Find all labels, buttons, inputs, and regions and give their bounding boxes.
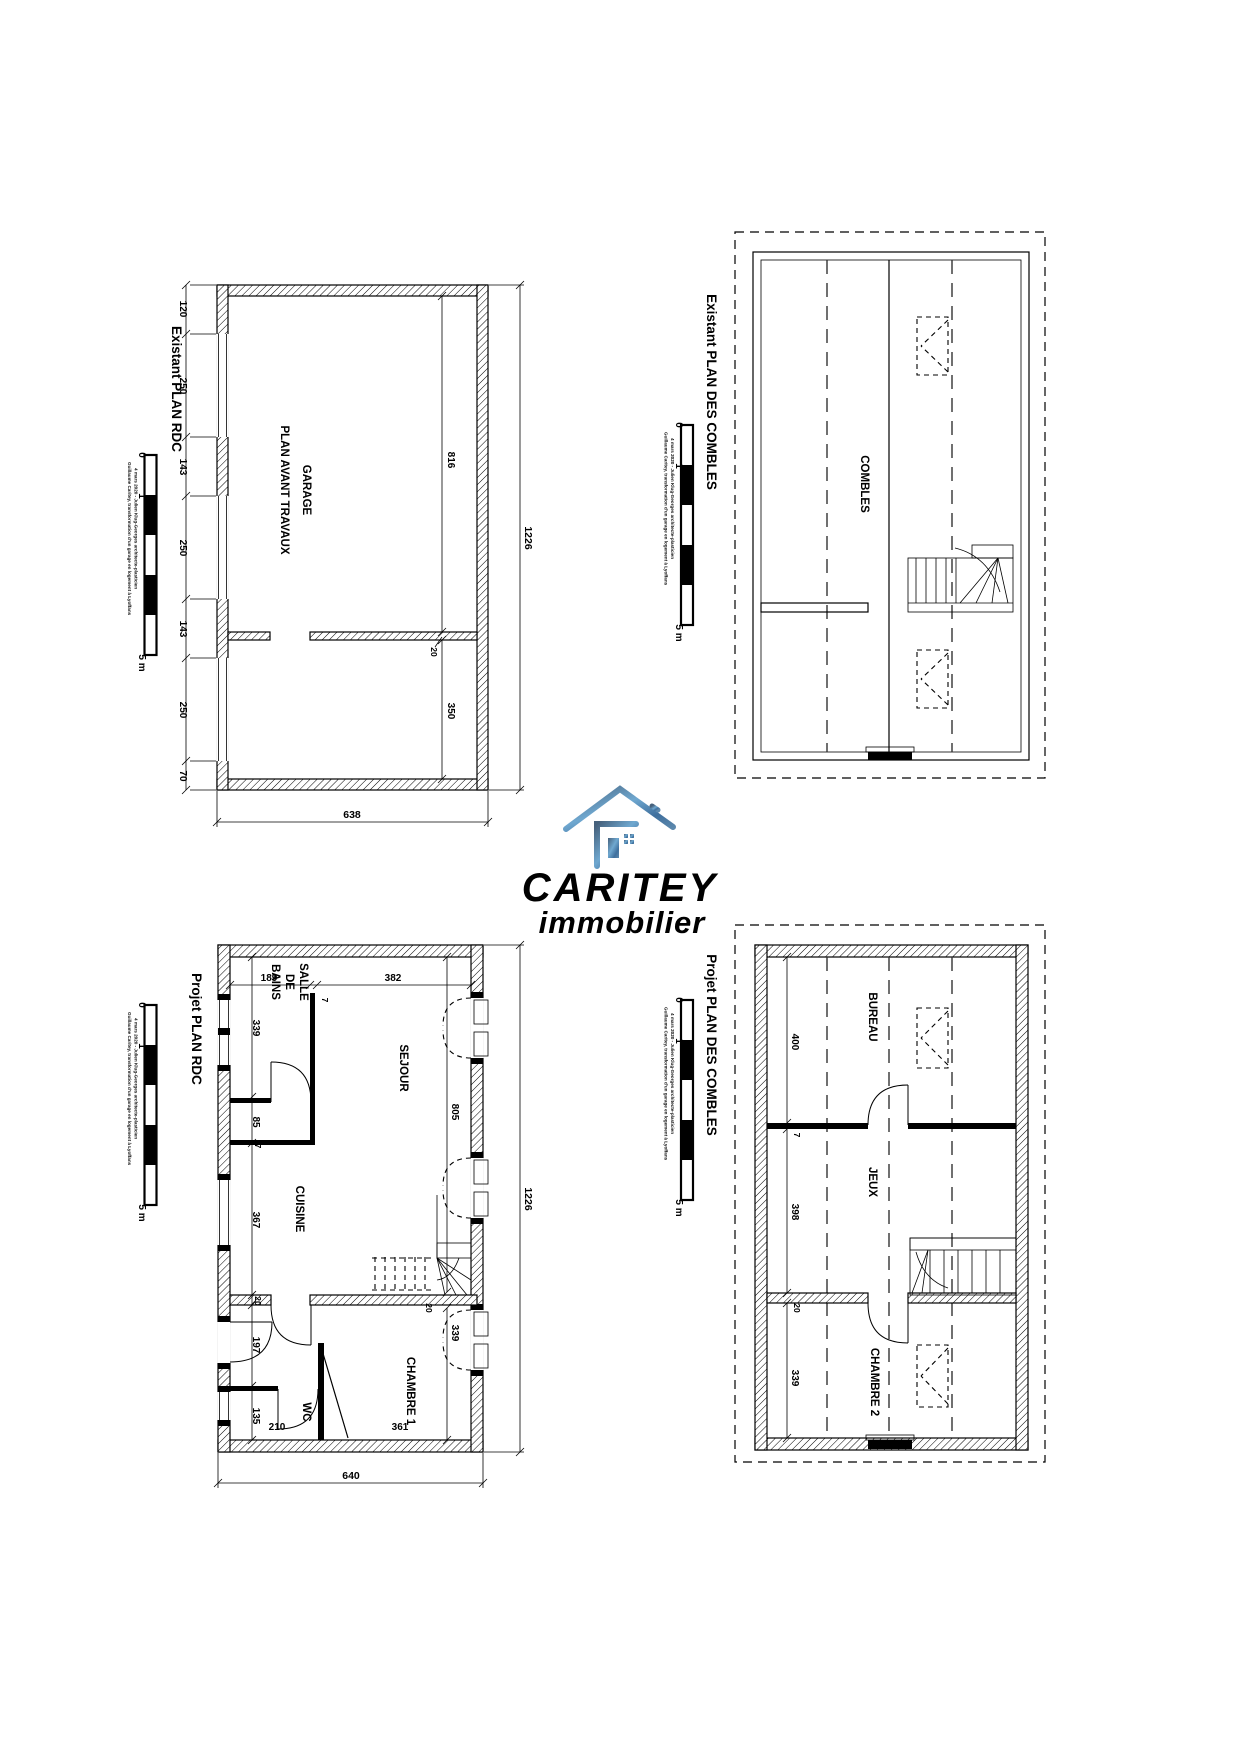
floor-plan-sheet: Existant PLAN RDC GARAGE PLAN AVANT TRAV… <box>0 0 1240 1754</box>
credit-line-1: Guillaume Caritey, transformation d'un g… <box>127 462 132 616</box>
plan-title: Existant PLAN DES COMBLES <box>704 294 719 490</box>
house-window <box>624 834 634 844</box>
scale-bar: 0 1 5 m Guillaume Caritey, transformatio… <box>127 1002 157 1222</box>
room-label-cuisine: CUISINE <box>293 1186 305 1233</box>
roof-window <box>917 1008 948 1068</box>
scale-five: 5 m <box>673 624 684 641</box>
garage-door-openings <box>216 334 229 761</box>
dimension-width: 638 <box>213 791 492 827</box>
dim-189: 189 <box>261 973 278 984</box>
left-wall-windows <box>217 994 231 1426</box>
dimension-length: 1226 <box>489 281 534 794</box>
room-label-bureau: BUREAU <box>866 992 878 1041</box>
staircase <box>372 1243 471 1295</box>
dim-1226: 1226 <box>522 1187 534 1211</box>
room-label-combles: COMBLES <box>858 455 870 513</box>
dim-805: 805 <box>449 1104 460 1121</box>
dim-250b: 250 <box>177 540 188 557</box>
roof-window <box>917 1345 948 1407</box>
dim-143b: 143 <box>177 621 188 638</box>
scale-zero: 0 <box>673 997 684 1003</box>
plan-title: Projet PLAN RDC <box>189 973 204 1085</box>
dim-20: 20 <box>792 1303 802 1313</box>
dim-350: 350 <box>445 703 456 720</box>
credit-line-2: 4 mars 2020 - Julien Klug-Georges archit… <box>670 1013 675 1134</box>
logo: CARITEY immobilier <box>522 789 719 940</box>
room-label-sejour: SEJOUR <box>397 1044 409 1092</box>
room-label-sdb1: SALLE <box>297 963 309 1001</box>
credit-line-2: 4 mars 2020 - Julien Klug-Georges archit… <box>134 468 139 589</box>
dim-70: 70 <box>177 770 188 782</box>
dim-816: 816 <box>445 452 456 469</box>
dim-7b: 7 <box>253 1144 263 1149</box>
dimension-top: 189 382 7 <box>226 973 475 1003</box>
room-label-sdb2: DE <box>283 974 295 990</box>
dim-638: 638 <box>343 809 361 821</box>
scale-bar: 0 1 5 m Guillaume Caritey, transformatio… <box>127 452 157 672</box>
house-door <box>608 838 619 858</box>
dim-640: 640 <box>342 1470 360 1482</box>
dim-20b: 20 <box>424 1303 434 1313</box>
roof-overhang-outline <box>735 232 1045 778</box>
plan-existant-rdc: Existant PLAN RDC GARAGE PLAN AVANT TRAV… <box>127 281 534 827</box>
right-wall-french-doors <box>443 992 488 1376</box>
dim-367: 367 <box>250 1212 261 1229</box>
scale-zero: 0 <box>136 452 147 458</box>
credit-line-2: 4 mars 2020 - Julien Klug-Georges archit… <box>134 1018 139 1139</box>
credit-line-2: 4 mars 2020 - Julien Klug-Georges archit… <box>670 438 675 559</box>
knee-wall <box>761 603 868 612</box>
dim-400: 400 <box>789 1034 800 1051</box>
dim-339: 339 <box>250 1020 261 1037</box>
roof-window <box>917 317 948 375</box>
dim-250a: 250 <box>177 378 188 395</box>
dim-143a: 143 <box>177 459 188 476</box>
plan-projet-combles: Projet PLAN DES COMBLES <box>664 925 1046 1462</box>
dim-135: 135 <box>250 1408 261 1425</box>
dimension-width: 640 <box>214 1453 487 1488</box>
dim-20: 20 <box>429 647 439 657</box>
scale-zero: 0 <box>136 1002 147 1008</box>
dim-1226: 1226 <box>522 526 534 550</box>
plan-title: Projet PLAN DES COMBLES <box>704 954 719 1136</box>
dimension-chain: 400 7 398 20 339 <box>783 953 802 1442</box>
plan-projet-rdc: Projet PLAN RDC <box>127 941 534 1488</box>
room-label-chambre1: CHAMBRE 1 <box>404 1357 416 1426</box>
credit-line-1: Guillaume Caritey, transformation d'un g… <box>127 1012 132 1166</box>
scale-bar: 0 1 5 m Guillaume Caritey, transformatio… <box>664 997 694 1217</box>
dim-7-wall: 7 <box>320 998 330 1003</box>
room-label-jeux: JEUX <box>866 1167 878 1197</box>
credit-line-1: Guillaume Caritey, transformation d'un g… <box>664 1007 669 1161</box>
dim-7: 7 <box>792 1133 802 1138</box>
dim-7c: 7 <box>253 1387 263 1392</box>
dim-7a: 7 <box>253 1098 263 1103</box>
brand-name: CARITEY <box>522 866 719 910</box>
roof-overhang-outline <box>735 925 1045 1462</box>
dimension-chain-left: 339 7 85 7 367 20 197 7 135 <box>248 953 263 1444</box>
room-label-chambre2: CHAMBRE 2 <box>868 1348 880 1416</box>
dim-120: 120 <box>177 301 188 318</box>
room-label-wc: WC <box>300 1402 312 1421</box>
dim-382: 382 <box>385 973 402 984</box>
interior-doors <box>868 1085 908 1343</box>
dim-250c: 250 <box>177 702 188 719</box>
dim-361: 361 <box>392 1422 409 1433</box>
plan-existant-combles: Existant PLAN DES COMBLES COMBLES <box>664 232 1046 778</box>
dimension-length: 1226 <box>484 941 534 1456</box>
interior-partitions <box>230 993 477 1440</box>
attic-door <box>866 747 914 760</box>
scale-five: 5 m <box>136 654 147 671</box>
dim-339b: 339 <box>449 1325 460 1342</box>
staircase <box>908 545 1013 612</box>
scale-five: 5 m <box>136 1204 147 1221</box>
dim-398: 398 <box>789 1204 800 1221</box>
scale-five: 5 m <box>673 1199 684 1216</box>
dim-197: 197 <box>250 1337 261 1354</box>
dim-210: 210 <box>269 1422 286 1433</box>
scale-zero: 0 <box>673 422 684 428</box>
dimension-interior: 816 20 350 <box>429 292 456 783</box>
credit-line-1: Guillaume Caritey, transformation d'un g… <box>664 432 669 586</box>
attic-door <box>866 1435 914 1449</box>
scale-bar: 0 1 5 m Guillaume Caritey, transformatio… <box>664 422 694 642</box>
drawing-canvas: Existant PLAN RDC GARAGE PLAN AVANT TRAV… <box>0 0 1240 1754</box>
interior-partitions <box>767 1123 1016 1303</box>
dim-85: 85 <box>250 1116 261 1128</box>
brand-tagline: immobilier <box>539 905 707 940</box>
house-icon <box>566 789 673 868</box>
room-label-garage: GARAGE <box>300 465 312 516</box>
interior-partition <box>228 296 477 779</box>
dim-20a: 20 <box>253 1296 263 1306</box>
roof-window <box>917 650 948 708</box>
staircase <box>910 1238 1016 1295</box>
room-label-garage-sub: PLAN AVANT TRAVAUX <box>278 425 290 554</box>
dim-339: 339 <box>789 1370 800 1387</box>
exterior-walls <box>753 252 1029 760</box>
